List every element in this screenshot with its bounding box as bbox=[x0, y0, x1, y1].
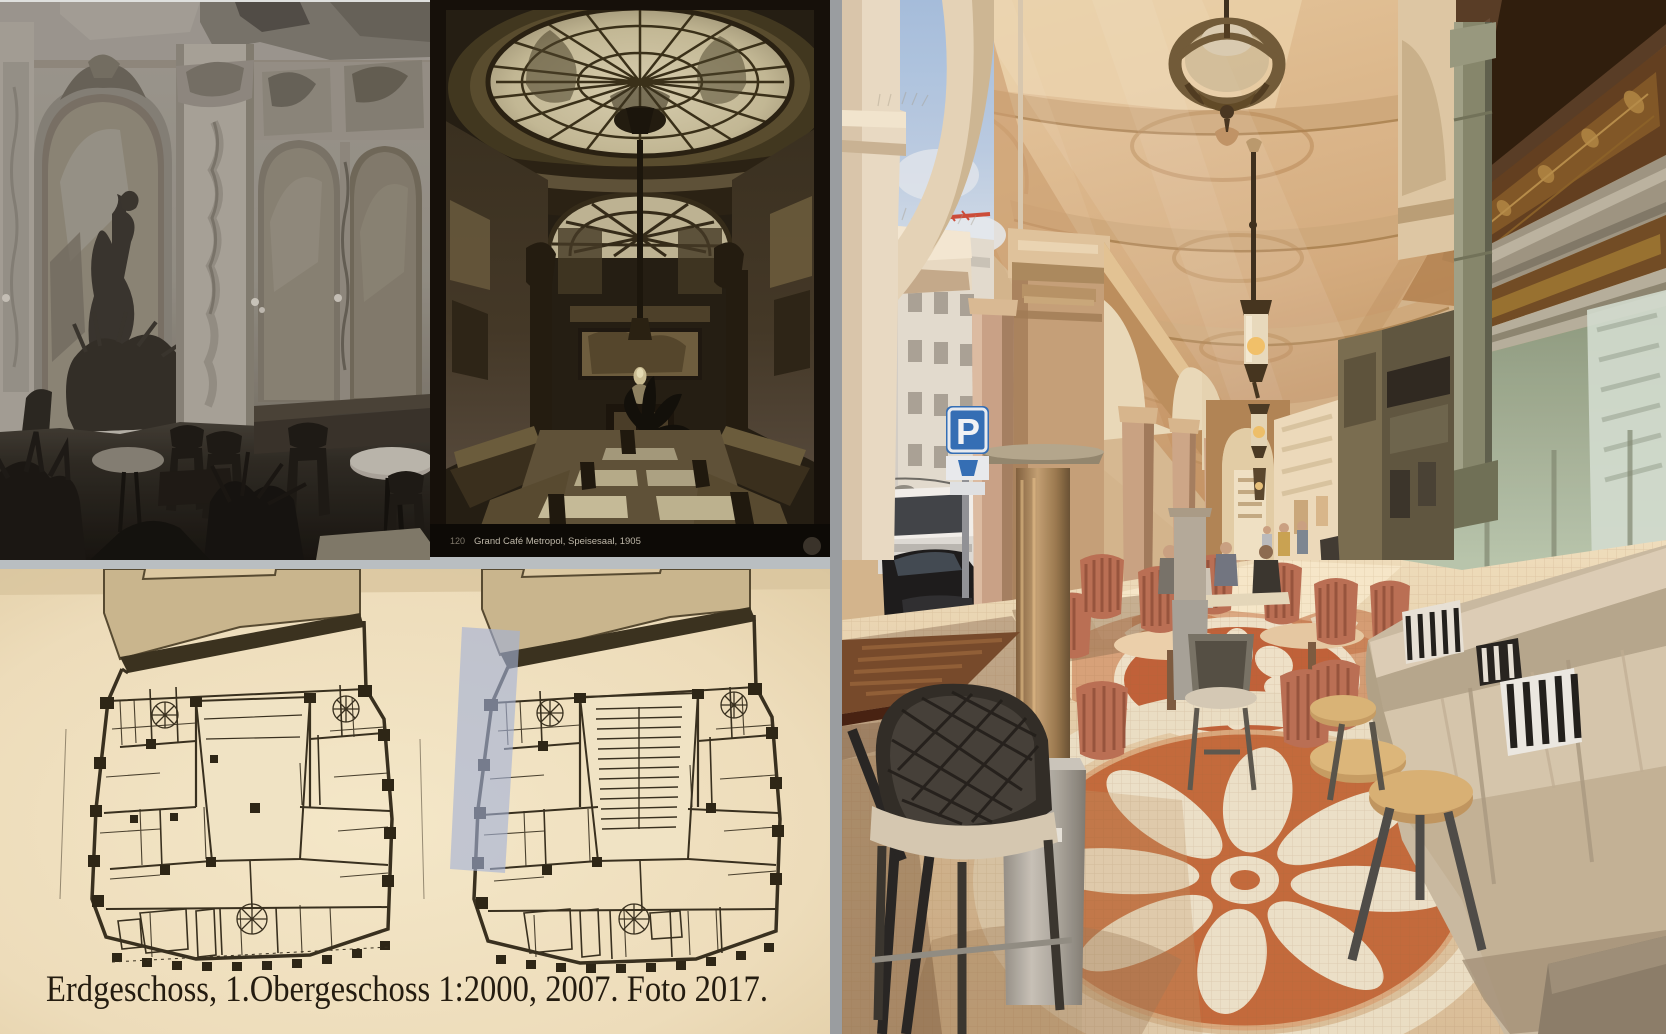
svg-text:Grand Café Metropol, Speisesaa: Grand Café Metropol, Speisesaal, 1905 bbox=[474, 536, 641, 547]
svg-text:120: 120 bbox=[450, 536, 465, 546]
svg-text:Erdgeschoss, 1.Obergeschoss 1:: Erdgeschoss, 1.Obergeschoss 1:2000, 2007… bbox=[46, 969, 768, 1010]
